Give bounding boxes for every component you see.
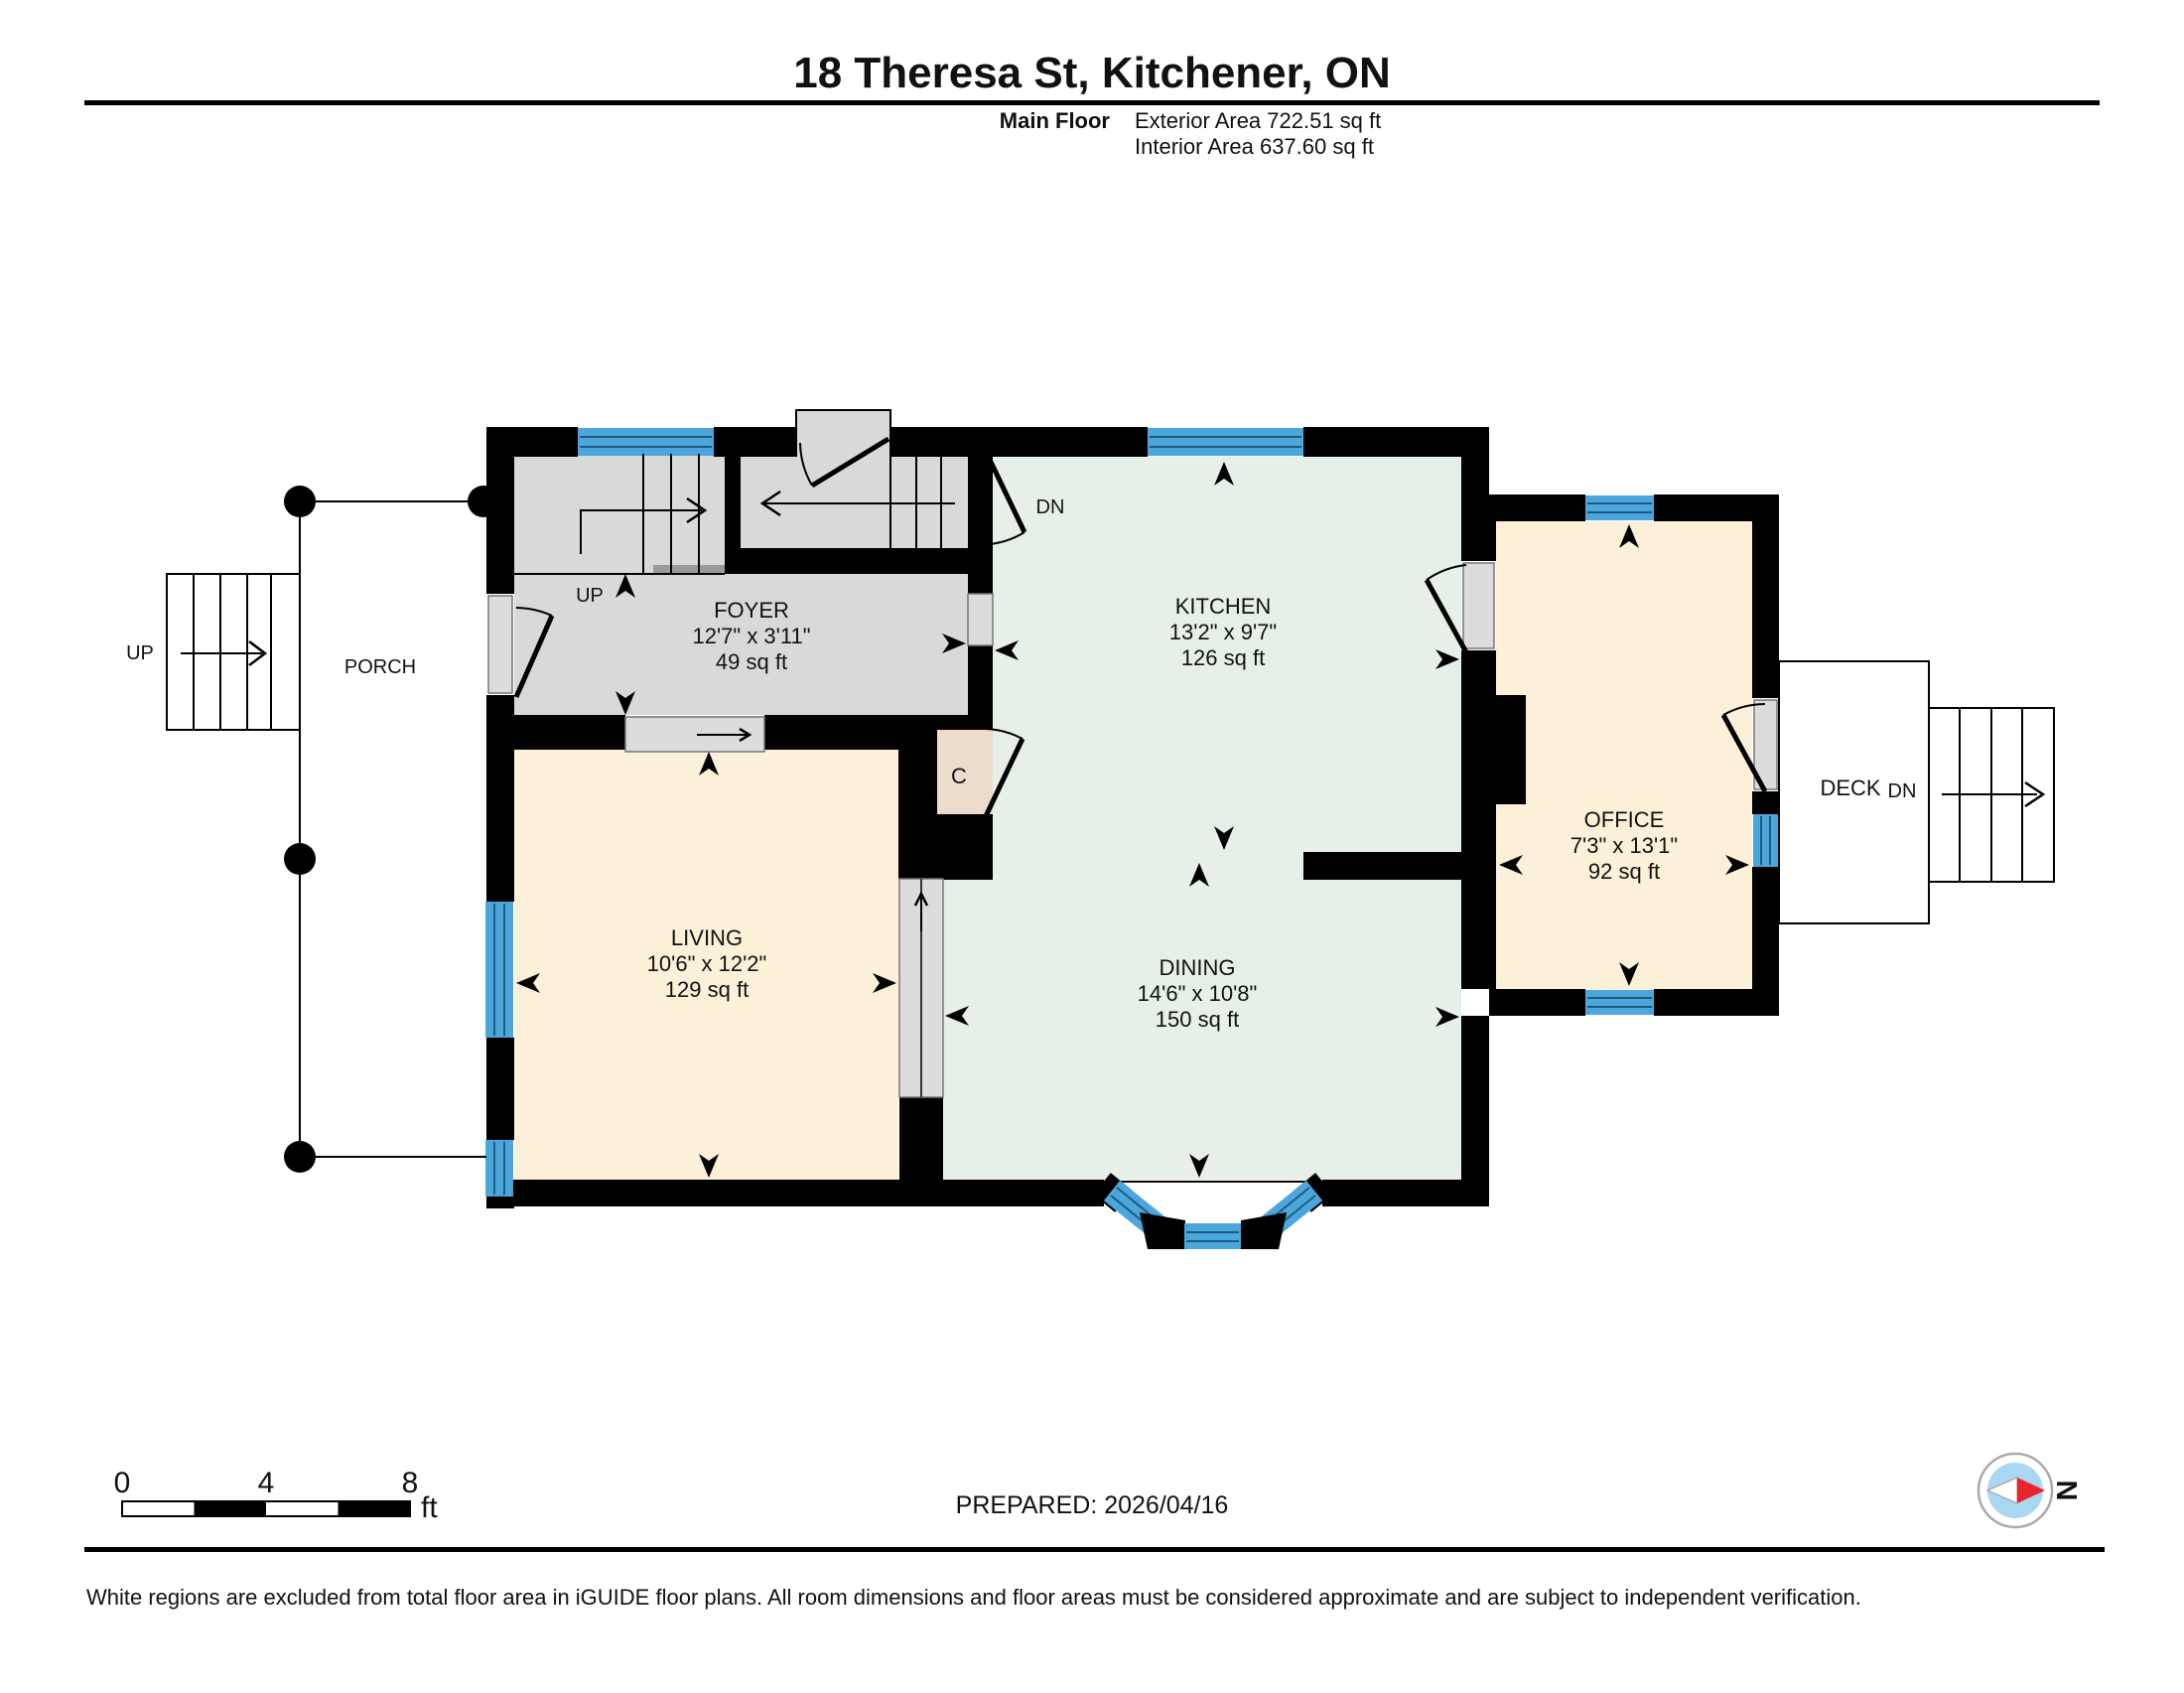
wall-segment <box>1752 867 1779 989</box>
dining-dims: 14'6" x 10'8" <box>1138 981 1258 1006</box>
stair-up-label: UP <box>576 585 604 607</box>
wall-segment <box>486 1038 514 1140</box>
foyer-dims: 12'7" x 3'11" <box>692 624 810 648</box>
stair-up-floor <box>514 454 725 574</box>
scale-tick-8: 8 <box>402 1467 419 1499</box>
dining-area: 150 sq ft <box>1156 1007 1239 1032</box>
room-fills <box>514 410 1752 1180</box>
foyer-kitchen-opening <box>968 594 993 645</box>
closet-label: C <box>951 764 967 788</box>
porch-label: PORCH <box>344 656 416 678</box>
disclaimer-text: White regions are excluded from total fl… <box>86 1585 1861 1610</box>
porch-post <box>284 486 316 517</box>
floorplan-page: 18 Theresa St, Kitchener, ON Main Floor … <box>0 0 2184 1688</box>
porch <box>167 486 499 1173</box>
porch-post <box>284 1141 316 1173</box>
wall-segment <box>1461 1016 1489 1180</box>
porch-stairs <box>167 574 300 730</box>
wall-segment <box>1303 427 1489 457</box>
wall-segment <box>937 814 993 880</box>
interior-area: Interior Area 637.60 sq ft <box>1135 134 1374 159</box>
window <box>1585 495 1654 520</box>
porch-post <box>284 843 316 875</box>
scale-bar-segment <box>195 1501 267 1516</box>
porch-up-label: UP <box>126 642 154 664</box>
stair-nosing <box>653 565 725 574</box>
scale-tick-0: 0 <box>114 1467 131 1499</box>
front-door-slab <box>488 596 512 693</box>
compass-north-label: N <box>2050 1481 2082 1501</box>
compass-icon: N <box>1979 1454 2082 1527</box>
stair-down-floor <box>741 454 970 548</box>
footer-rule <box>84 1547 2105 1552</box>
bay-window <box>1102 1182 1324 1249</box>
wall-segment <box>898 715 937 879</box>
scale-bar-segment <box>339 1501 411 1516</box>
wall-segment <box>486 695 514 902</box>
wall-segment <box>514 715 625 750</box>
chimney-bump <box>1496 695 1526 804</box>
exterior-area: Exterior Area 722.51 sq ft <box>1135 108 1381 133</box>
scale-unit: ft <box>421 1491 438 1524</box>
wall-segment <box>764 715 898 750</box>
window <box>1585 990 1654 1015</box>
kitchen-label: KITCHEN <box>1175 594 1272 619</box>
bay-window-pane <box>1184 1223 1241 1249</box>
floorplan-svg: 18 Theresa St, Kitchener, ON Main Floor … <box>0 0 2184 1688</box>
window <box>1148 428 1303 456</box>
wall-segment <box>899 1097 943 1180</box>
wall-segment <box>890 427 1148 457</box>
wall-segment <box>1752 791 1779 814</box>
prepared-date: PREPARED: 2026/04/16 <box>956 1491 1229 1519</box>
window <box>578 428 714 456</box>
kitchen-area: 126 sq ft <box>1181 645 1265 670</box>
kitchen-dims: 13'2" x 9'7" <box>1169 620 1277 644</box>
wall-segment <box>1303 852 1461 880</box>
side-door-vestibule <box>796 410 890 457</box>
porch-post <box>468 486 499 517</box>
kitchen-office-door-slab <box>1463 563 1494 648</box>
window <box>485 902 513 1038</box>
floor-label: Main Floor <box>1000 108 1111 133</box>
wall-segment <box>968 427 993 594</box>
page-title: 18 Theresa St, Kitchener, ON <box>793 49 1391 97</box>
wall-segment <box>1752 494 1779 698</box>
wall-segment <box>1489 494 1585 521</box>
deck-down-label: DN <box>1888 780 1917 802</box>
scale-tick-4: 4 <box>258 1467 275 1499</box>
header-rule <box>84 100 2100 105</box>
deck-label: DECK <box>1820 776 1880 800</box>
foyer-label: FOYER <box>714 598 789 623</box>
office-area: 92 sq ft <box>1588 859 1660 884</box>
wall-segment <box>1322 1180 1489 1206</box>
dining-label: DINING <box>1160 955 1236 980</box>
window <box>1753 814 1778 867</box>
office-floor <box>1496 521 1752 989</box>
wall-segment <box>1461 650 1496 989</box>
window <box>485 1140 513 1197</box>
living-area: 129 sq ft <box>665 977 749 1002</box>
wall-segment <box>725 427 741 574</box>
living-label: LIVING <box>671 925 743 950</box>
office-dims: 7'3" x 13'1" <box>1570 833 1678 858</box>
wall-segment <box>937 715 993 730</box>
header: 18 Theresa St, Kitchener, ON Main Floor … <box>84 49 2100 159</box>
office-label: OFFICE <box>1584 807 1665 832</box>
wall-segment <box>1489 989 1585 1016</box>
footer: 0 4 8 ft PREPARED: 2026/04/16 N White re… <box>84 1454 2105 1610</box>
wall-segment <box>741 548 970 574</box>
wall-segment <box>1654 989 1779 1016</box>
foyer-area: 49 sq ft <box>716 649 787 674</box>
wall-segment <box>486 1180 1104 1206</box>
living-dims: 10'6" x 12'2" <box>647 951 767 976</box>
wall-segment <box>1461 427 1489 494</box>
stair-down-label: DN <box>1036 496 1065 518</box>
